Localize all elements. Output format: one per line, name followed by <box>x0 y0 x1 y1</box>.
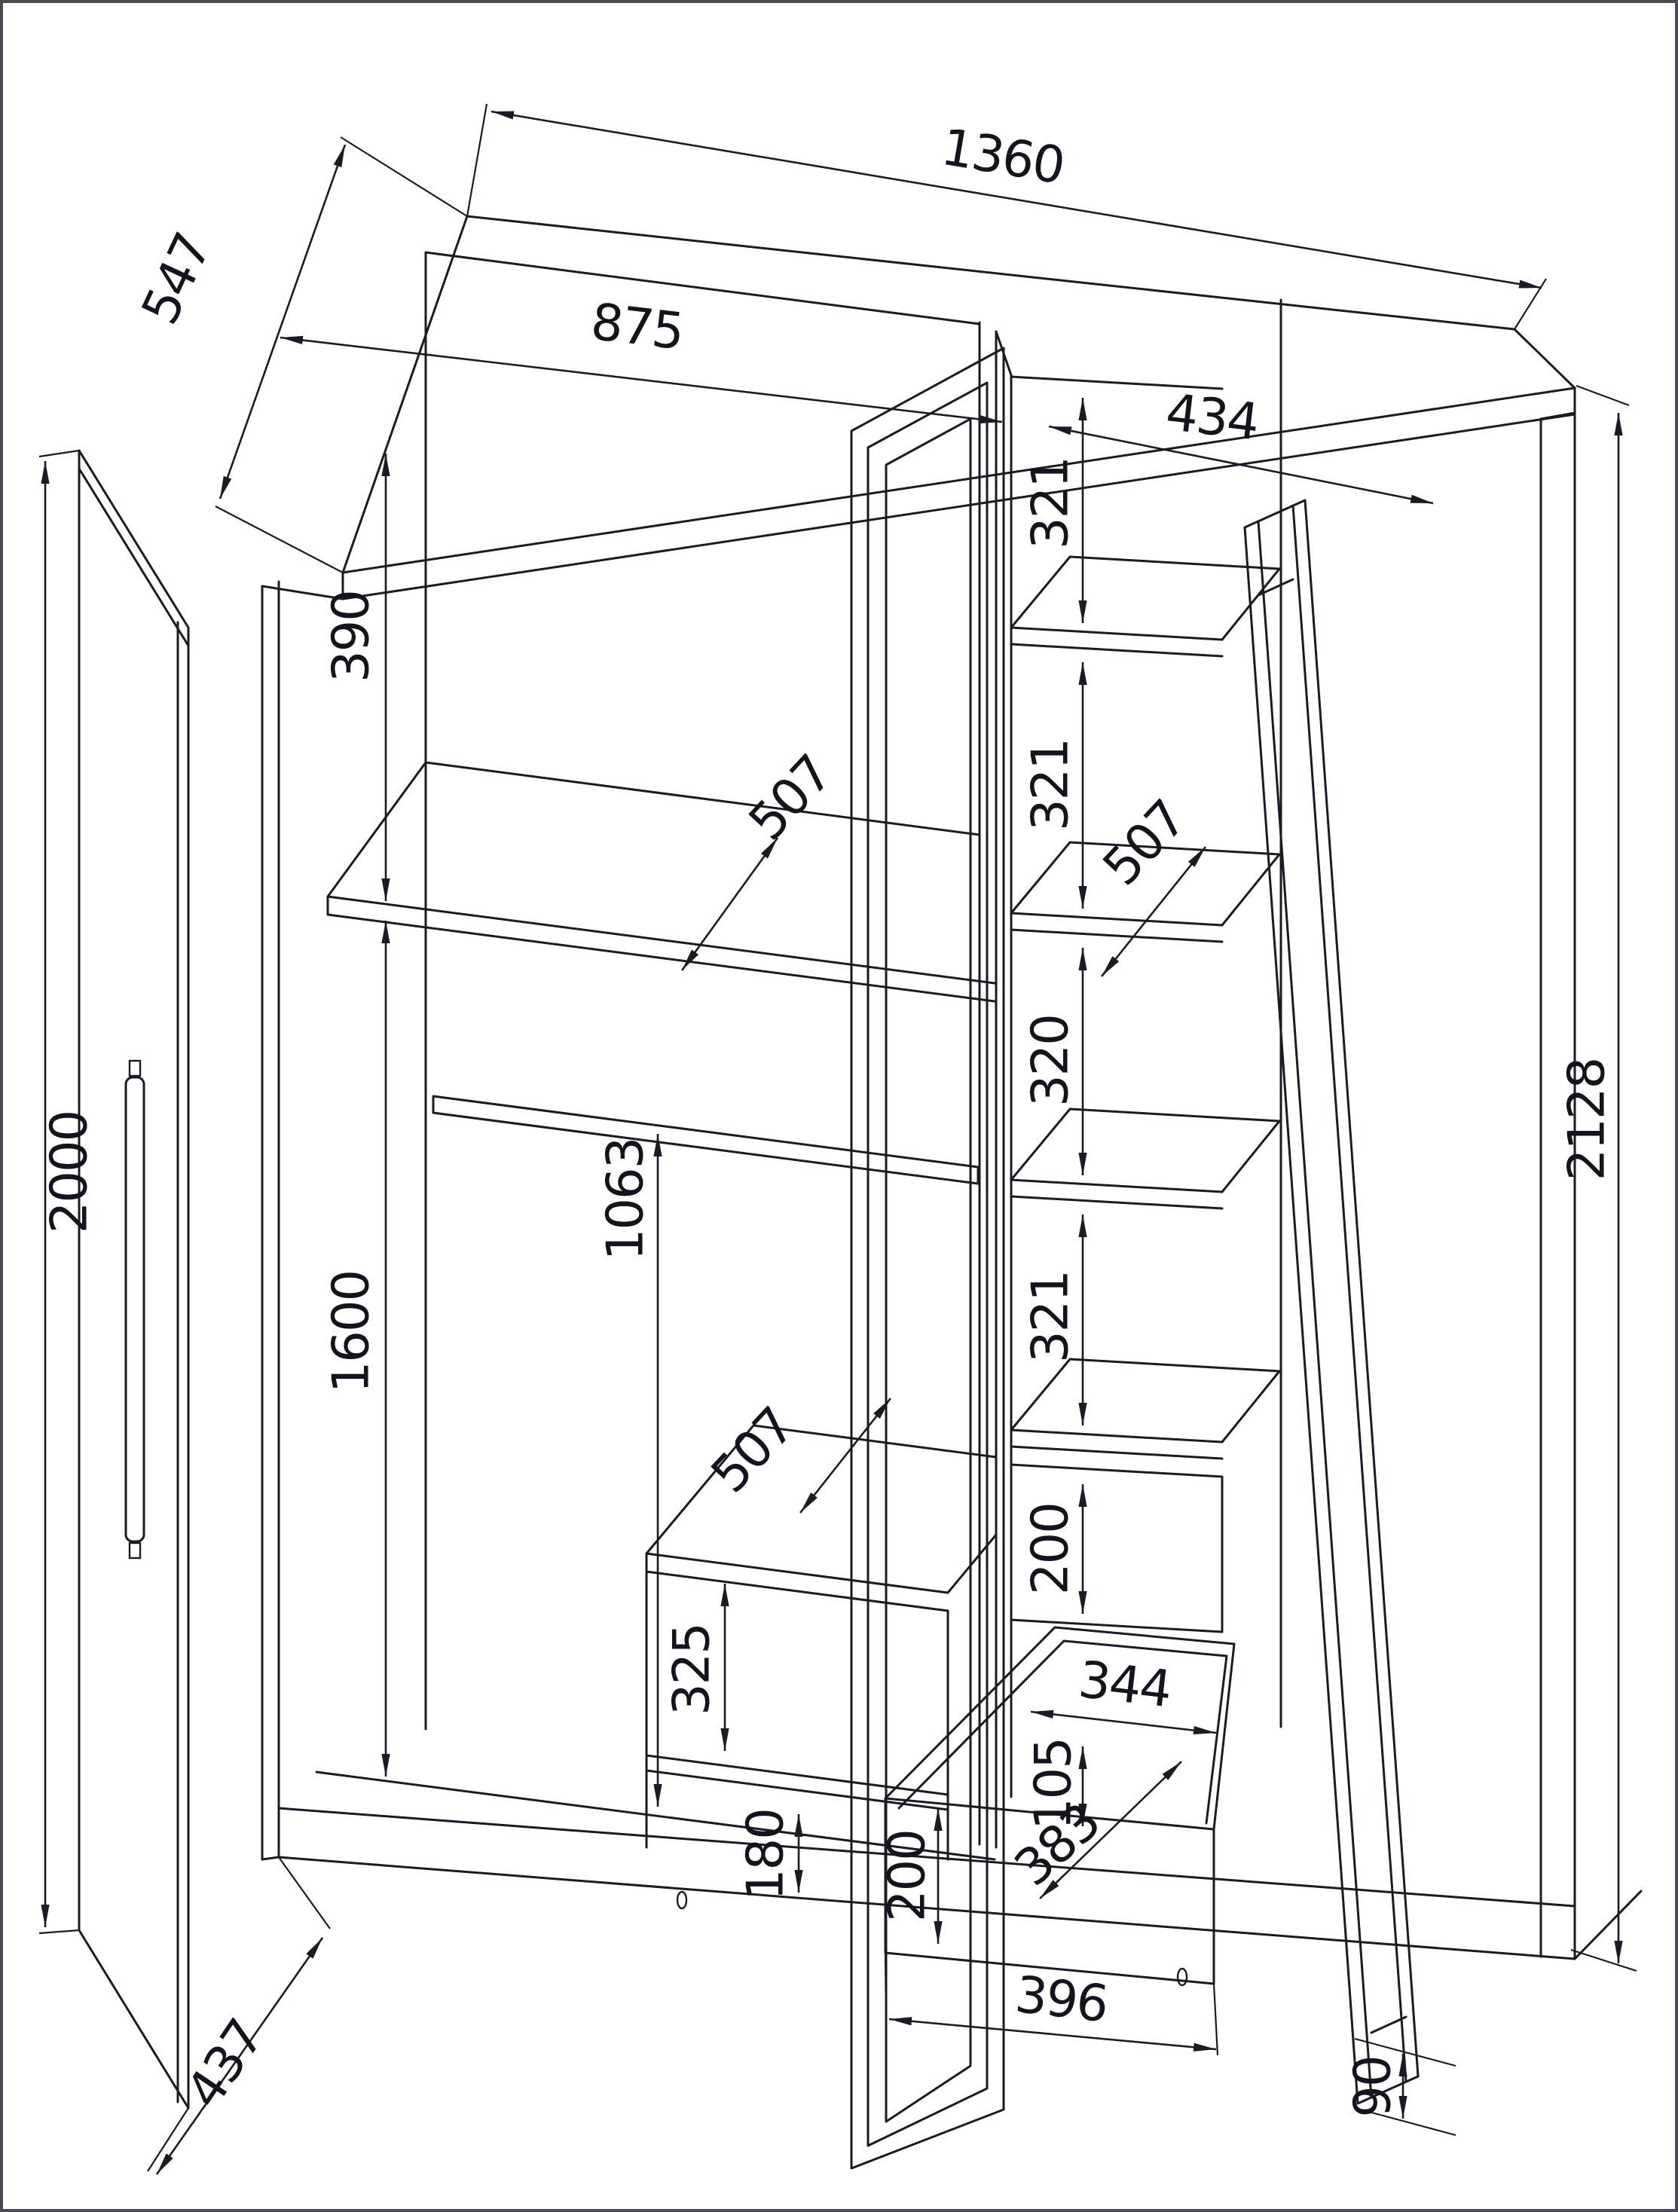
dim-bd-width-top: 344 <box>1031 1650 1216 1733</box>
wardrobe-technical-drawing: 547 1360 875 434 390 507 <box>0 0 1678 2212</box>
drawing-page: 547 1360 875 434 390 507 <box>0 0 1678 2212</box>
dim-rc-depth: 507 <box>1092 790 1206 976</box>
dim-top-depth: 547 <box>130 137 467 573</box>
handle-top-mount <box>130 1061 140 1076</box>
svg-text:200: 200 <box>878 1830 937 1922</box>
dim-ls-depth: 507 <box>700 1397 891 1513</box>
svg-text:1600: 1600 <box>322 1271 381 1394</box>
dim-door-height: 2000 <box>39 451 99 1933</box>
dim-base-height: 90 <box>1343 2039 1456 2135</box>
dim-rc-gap4: 321 <box>1021 1214 1083 1425</box>
svg-text:547: 547 <box>130 225 222 332</box>
svg-text:2128: 2128 <box>1557 1059 1616 1181</box>
svg-text:383: 383 <box>1004 1792 1111 1898</box>
svg-text:2000: 2000 <box>40 1111 99 1234</box>
right-door <box>1245 500 1418 2104</box>
dim-rc-gap2: 321 <box>1021 662 1083 909</box>
dim-bd-width-bottom: 396 <box>885 1953 1218 2055</box>
svg-text:434: 434 <box>1163 383 1261 452</box>
svg-text:1360: 1360 <box>937 118 1068 196</box>
foot-left <box>677 1892 686 1908</box>
dim-left-tall: 1600 <box>322 921 386 1777</box>
dim-ls-gap1: 325 <box>662 1584 725 1751</box>
svg-text:180: 180 <box>736 1809 795 1901</box>
svg-text:507: 507 <box>738 744 843 851</box>
dim-door-bottom-depth: 437 <box>148 1857 330 2174</box>
svg-text:344: 344 <box>1076 1650 1174 1719</box>
handle-bottom-mount <box>130 1543 140 1558</box>
rc-shelf-1 <box>1011 557 1279 656</box>
svg-text:321: 321 <box>1021 457 1080 549</box>
svg-text:507: 507 <box>1092 790 1197 897</box>
svg-text:321: 321 <box>1021 739 1080 831</box>
dim-ls-gap2: 180 <box>736 1809 799 1901</box>
rc-shelf-4 <box>1011 1359 1279 1459</box>
top-panel-face <box>343 216 1575 573</box>
svg-text:507: 507 <box>700 1397 805 1504</box>
left-section-interior-top <box>426 252 980 1729</box>
left-top-shelf <box>328 762 995 1001</box>
drawing-border <box>2 2 1676 2210</box>
svg-text:90: 90 <box>1343 2056 1402 2117</box>
left-wall <box>262 582 343 1859</box>
svg-text:200: 200 <box>1021 1503 1080 1595</box>
svg-text:390: 390 <box>322 591 381 683</box>
left-door-handle <box>126 1077 144 1541</box>
dim-rc-drawer-height: 200 <box>1021 1484 1083 1614</box>
svg-text:875: 875 <box>588 292 686 362</box>
top-panel-band <box>343 388 1575 599</box>
wardrobe-structure <box>79 216 1641 2168</box>
svg-text:320: 320 <box>1021 1015 1080 1107</box>
left-door <box>79 451 188 2108</box>
svg-text:1063: 1063 <box>596 1138 655 1261</box>
rc-shelf-3 <box>1011 1109 1279 1208</box>
partition <box>980 322 1011 1847</box>
dim-rod-height: 1063 <box>596 1134 658 1807</box>
svg-text:325: 325 <box>662 1624 721 1716</box>
hanging-rod <box>433 1096 978 1184</box>
dim-total-height: 2128 <box>1557 386 1637 1971</box>
right-wall <box>1541 413 1641 1959</box>
dim-shelf-depth-top: 507 <box>682 744 843 970</box>
foot-right <box>1178 1969 1187 1985</box>
dim-rc-gap3: 320 <box>1021 948 1083 1175</box>
svg-text:321: 321 <box>1021 1271 1080 1363</box>
dim-left-width: 875 <box>280 292 1002 422</box>
dim-top-gap: 390 <box>322 454 386 901</box>
svg-text:396: 396 <box>1013 1965 1111 2033</box>
